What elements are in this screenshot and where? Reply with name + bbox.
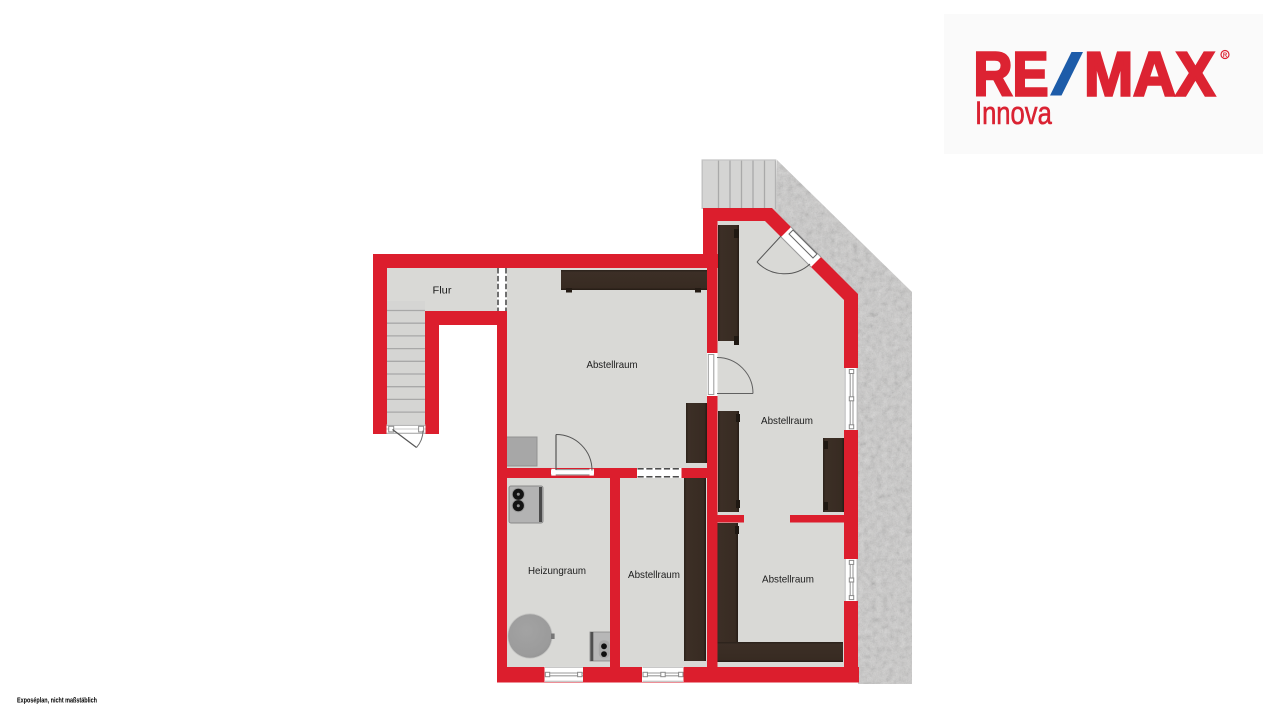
svg-text:Abstellraum: Abstellraum (762, 574, 814, 586)
svg-text:Exposéplan, nicht maßstäblich: Exposéplan, nicht maßstäblich (17, 696, 97, 705)
svg-text:Abstellraum: Abstellraum (628, 569, 680, 581)
svg-text:Abstellraum: Abstellraum (587, 359, 638, 371)
svg-text:Abstellraum: Abstellraum (761, 415, 813, 427)
svg-text:Heizungraum: Heizungraum (528, 565, 586, 577)
svg-text:R: R (1223, 53, 1228, 59)
svg-text:Innova: Innova (975, 96, 1053, 131)
svg-text:MAX: MAX (1084, 39, 1215, 109)
svg-text:Flur: Flur (433, 285, 453, 297)
